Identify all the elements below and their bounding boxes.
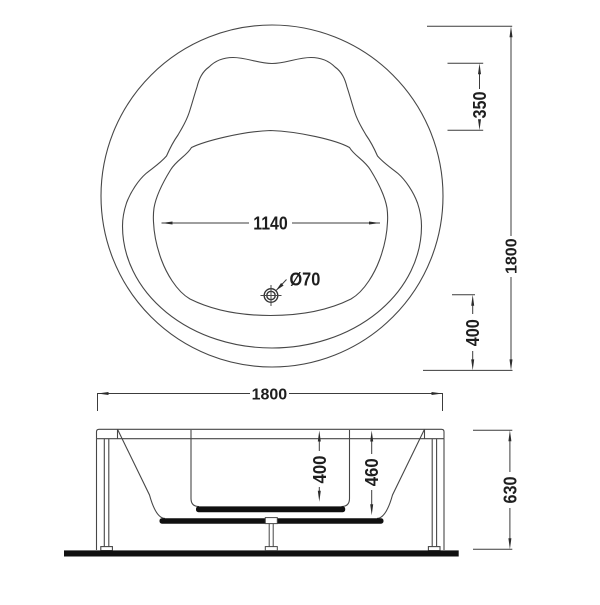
svg-text:1800: 1800 <box>252 387 288 404</box>
svg-text:460: 460 <box>362 458 382 486</box>
svg-text:400: 400 <box>463 319 483 346</box>
svg-text:350: 350 <box>470 92 490 119</box>
svg-text:1800: 1800 <box>504 238 521 274</box>
svg-text:400: 400 <box>310 456 330 484</box>
svg-text:630: 630 <box>500 477 520 504</box>
svg-text:1140: 1140 <box>253 213 288 233</box>
svg-text:Ø70: Ø70 <box>290 269 321 289</box>
